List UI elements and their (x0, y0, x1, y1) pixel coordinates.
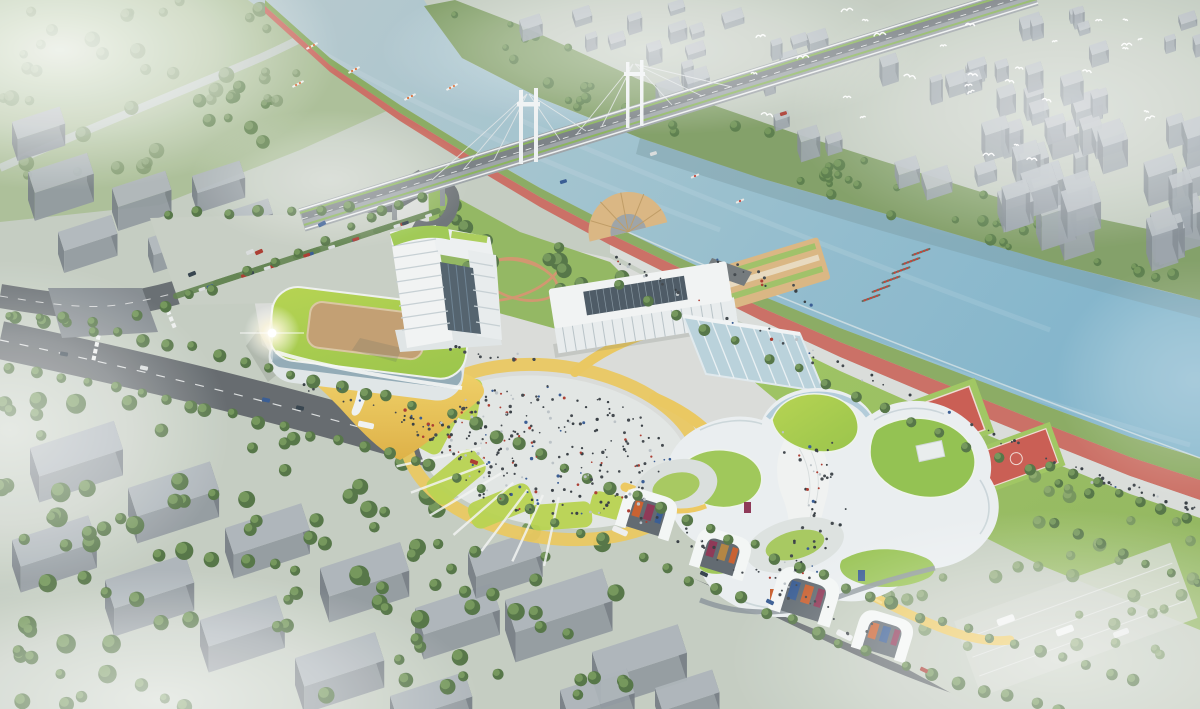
fog-overlays (0, 0, 1200, 709)
rendering-canvas (0, 0, 1200, 709)
aerial-rendering (0, 0, 1200, 709)
